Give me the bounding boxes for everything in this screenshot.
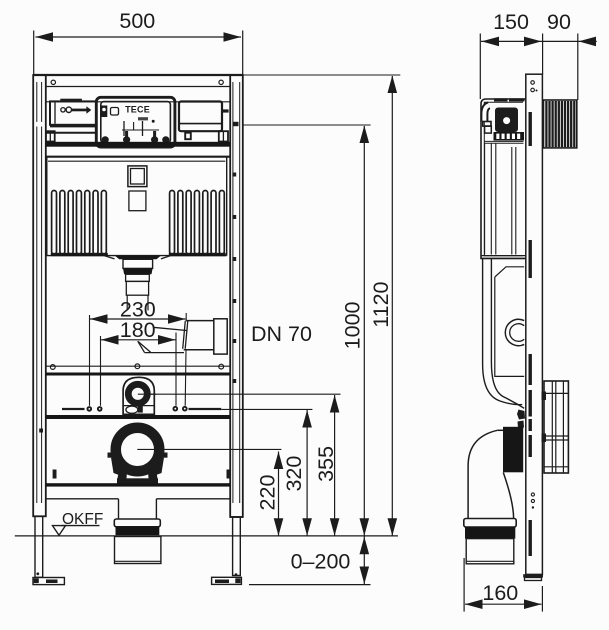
svg-text:0–200: 0–200 [291, 550, 351, 574]
svg-text:500: 500 [119, 9, 155, 33]
svg-text:220: 220 [255, 475, 279, 511]
svg-text:TECE: TECE [125, 105, 150, 115]
svg-text:1120: 1120 [369, 281, 393, 327]
svg-text:DN 70: DN 70 [251, 322, 312, 346]
svg-text:1000: 1000 [341, 301, 365, 349]
svg-text:150: 150 [493, 10, 529, 34]
svg-text:320: 320 [282, 456, 306, 492]
svg-text:180: 180 [120, 318, 156, 342]
svg-text:90: 90 [547, 10, 571, 34]
svg-text:160: 160 [482, 581, 518, 605]
